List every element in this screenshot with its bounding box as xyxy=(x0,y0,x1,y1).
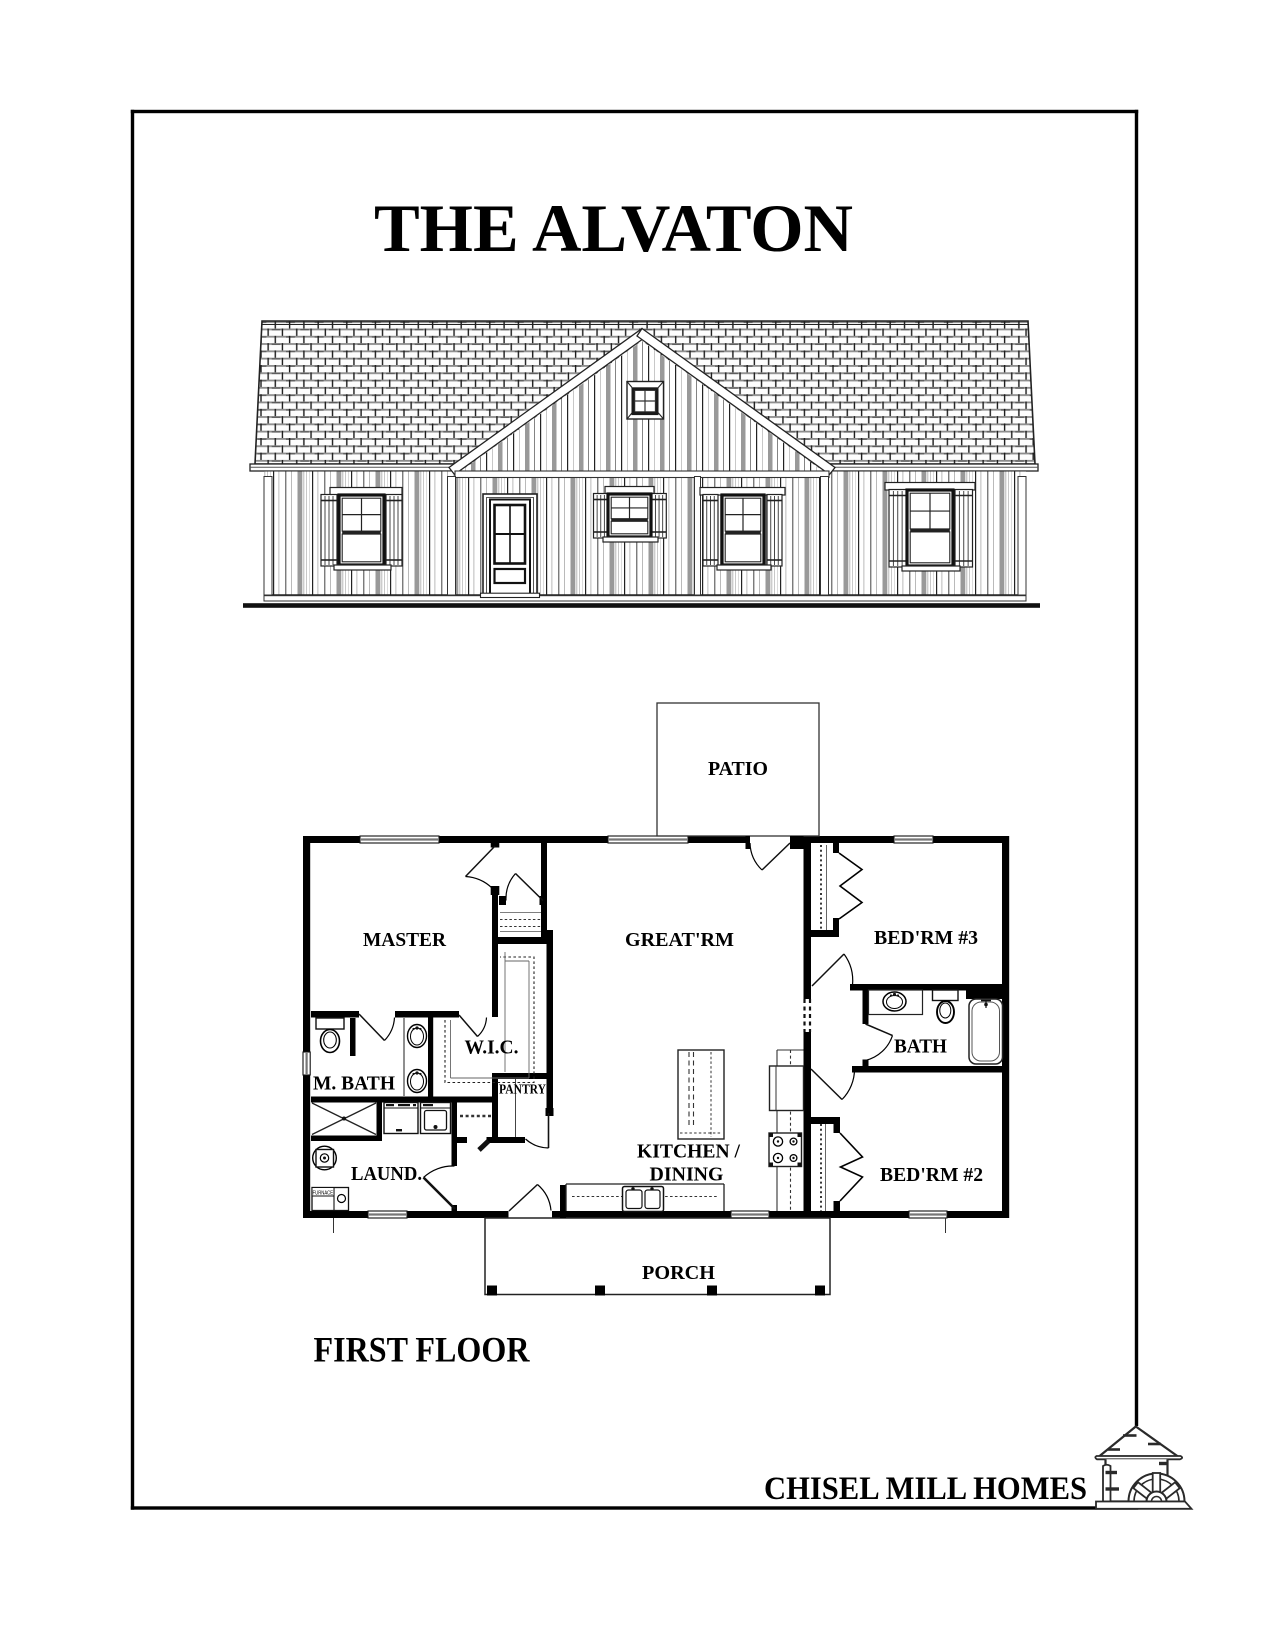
svg-text:PATIO: PATIO xyxy=(708,758,768,780)
svg-text:PANTRY: PANTRY xyxy=(499,1082,546,1097)
svg-text:DINING: DINING xyxy=(650,1164,724,1186)
svg-text:CHISEL MILL HOMES: CHISEL MILL HOMES xyxy=(764,1471,1087,1507)
svg-text:LAUND.: LAUND. xyxy=(351,1163,422,1185)
svg-text:FURNACE: FURNACE xyxy=(313,1191,334,1197)
svg-text:FIRST FLOOR: FIRST FLOOR xyxy=(314,1330,531,1370)
svg-text:GREAT'RM: GREAT'RM xyxy=(625,929,734,951)
svg-text:BED'RM #2: BED'RM #2 xyxy=(880,1164,983,1186)
svg-text:PORCH: PORCH xyxy=(642,1262,715,1284)
svg-text:M. BATH: M. BATH xyxy=(313,1073,395,1095)
svg-text:THE ALVATON: THE ALVATON xyxy=(374,190,853,266)
svg-text:MASTER: MASTER xyxy=(363,929,446,951)
svg-text:BATH: BATH xyxy=(894,1036,947,1058)
svg-text:W.I.C.: W.I.C. xyxy=(465,1037,519,1059)
svg-text:KITCHEN /: KITCHEN / xyxy=(637,1141,740,1163)
svg-text:BED'RM #3: BED'RM #3 xyxy=(874,927,978,949)
